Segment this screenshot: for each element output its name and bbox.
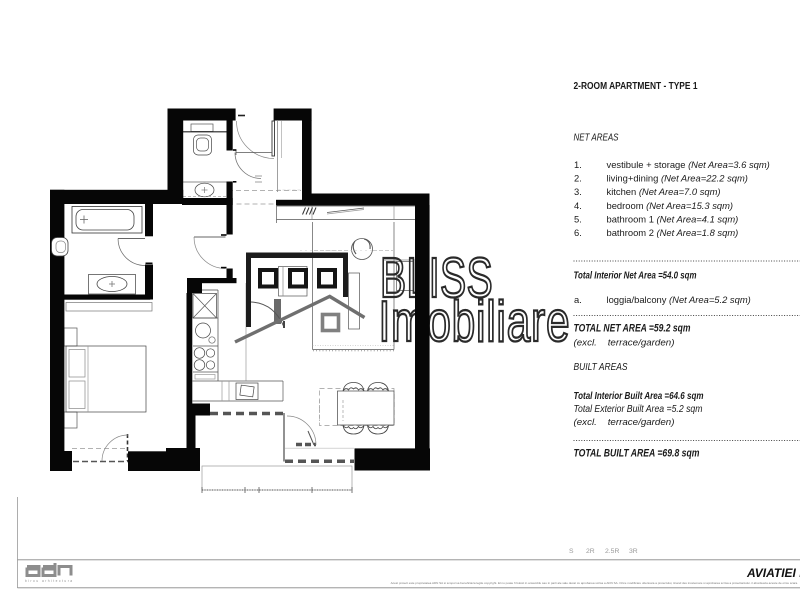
svg-text:Total Interior Net Area =54.0: Total Interior Net Area =54.0 sqm bbox=[574, 271, 697, 282]
svg-text:1.: 1. bbox=[574, 159, 582, 170]
svg-text:Imobiliare: Imobiliare bbox=[379, 289, 571, 354]
svg-text:BUILT AREAS: BUILT AREAS bbox=[574, 362, 628, 373]
svg-text:2-ROOM APARTMENT - TYPE 1: 2-ROOM APARTMENT - TYPE 1 bbox=[574, 81, 698, 92]
svg-text:vestibule + storage (Net Area: vestibule + storage (Net Area=3.6 sqm) bbox=[607, 159, 770, 170]
svg-text:a.: a. bbox=[574, 294, 582, 305]
svg-text:2.: 2. bbox=[574, 173, 582, 184]
svg-text:bedroom (Net Area=15.3 sqm): bedroom (Net Area=15.3 sqm) bbox=[607, 200, 734, 211]
svg-text:5.: 5. bbox=[574, 213, 582, 224]
svg-text:2.5R: 2.5R bbox=[605, 548, 619, 555]
svg-text:4.: 4. bbox=[574, 200, 582, 211]
svg-text:AVIATIEI PARK: AVIATIEI PARK bbox=[746, 566, 800, 580]
svg-text:kitchen (Net Area=7.0 sqm): kitchen (Net Area=7.0 sqm) bbox=[607, 186, 721, 197]
svg-text:TOTAL NET AREA =59.2 sqm: TOTAL NET AREA =59.2 sqm bbox=[574, 323, 691, 335]
svg-text:NET AREAS: NET AREAS bbox=[574, 133, 619, 144]
svg-text:Total Exterior Built Area =5.2: Total Exterior Built Area =5.2 sqm bbox=[574, 404, 703, 415]
svg-text:S: S bbox=[569, 548, 574, 555]
svg-text:Total Interior Built Area =64.: Total Interior Built Area =64.6 sqm bbox=[574, 391, 704, 402]
svg-text:bathroom 2 (Net Area=1.8 sqm): bathroom 2 (Net Area=1.8 sqm) bbox=[607, 227, 739, 238]
svg-text:bathroom 1 (Net Area=4.1 sqm): bathroom 1 (Net Area=4.1 sqm) bbox=[607, 213, 739, 224]
svg-text:(excl. terrace/garden): (excl. terrace/garden) bbox=[574, 338, 675, 349]
svg-text:birou arhitectura: birou arhitectura bbox=[25, 579, 74, 583]
svg-text:(excl. terrace/garden): (excl. terrace/garden) bbox=[574, 417, 675, 428]
svg-text:3R: 3R bbox=[629, 548, 638, 555]
svg-text:Acest proiect este proprietate: Acest proiect este proprietatea ADN SA s… bbox=[391, 581, 799, 585]
svg-text:6.: 6. bbox=[574, 227, 582, 238]
svg-text:loggia/balcony (Net Area=5.2 s: loggia/balcony (Net Area=5.2 sqm) bbox=[607, 294, 751, 305]
svg-text:TOTAL BUILT AREA =69.8 sqm: TOTAL BUILT AREA =69.8 sqm bbox=[574, 448, 700, 460]
svg-text:living+dining (Net Area=22.2 s: living+dining (Net Area=22.2 sqm) bbox=[607, 173, 748, 184]
svg-text:3.: 3. bbox=[574, 186, 582, 197]
svg-text:2R: 2R bbox=[586, 548, 595, 555]
